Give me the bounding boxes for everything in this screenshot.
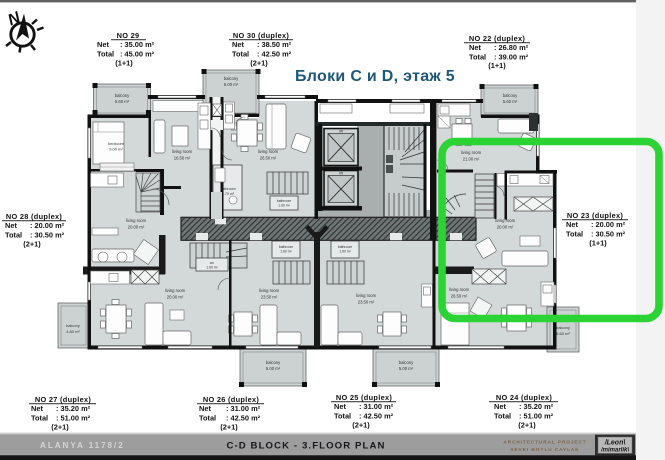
svg-text:Net: Net [199, 404, 211, 413]
svg-text:23.50 m²: 23.50 m² [261, 295, 278, 300]
svg-text:5.00 m²: 5.00 m² [399, 366, 414, 371]
svg-text:bathroom: bathroom [338, 245, 352, 249]
svg-text:bathroom: bathroom [279, 245, 293, 249]
svg-text:living room: living room [126, 218, 147, 223]
svg-text:: 31.00 m²: : 31.00 m² [359, 402, 394, 411]
svg-text:Total: Total [199, 414, 216, 423]
svg-text:(2+1): (2+1) [23, 240, 41, 249]
svg-text:: 51.00 m²: : 51.00 m² [519, 411, 554, 420]
svg-text:: 20.00 m²: : 20.00 m² [591, 220, 626, 229]
svg-text:(2+1): (2+1) [250, 59, 268, 68]
svg-text:NO 24 (duplex): NO 24 (duplex) [496, 393, 553, 402]
svg-text:: 35.00 m²: : 35.00 m² [120, 40, 155, 49]
svg-text:C-D BLOCK - 3.FLOOR PLAN: C-D BLOCK - 3.FLOOR PLAN [226, 441, 385, 452]
svg-text:5.00 m²: 5.00 m² [224, 82, 239, 87]
svg-text:: 20.00 m²: : 20.00 m² [30, 221, 65, 230]
svg-text:living room: living room [495, 218, 516, 223]
svg-text:balcony: balcony [115, 93, 130, 98]
svg-text:Total: Total [334, 411, 351, 420]
svg-text:: 42.50 m²: : 42.50 m² [226, 414, 261, 423]
svg-text:20.00 m²: 20.00 m² [167, 295, 184, 300]
svg-text:: 30.50 m²: : 30.50 m² [30, 231, 65, 240]
svg-text:NO 22 (duplex): NO 22 (duplex) [469, 34, 526, 43]
svg-text:NO 26 (duplex): NO 26 (duplex) [203, 395, 260, 404]
svg-text:1.60 m²: 1.60 m² [339, 250, 351, 254]
svg-text:lift: lift [339, 172, 342, 176]
svg-text:Total: Total [232, 50, 249, 59]
svg-text:: 35.20 m²: : 35.20 m² [56, 404, 91, 413]
svg-text:(1+1): (1+1) [115, 59, 133, 68]
svg-text:: 31.00 m²: : 31.00 m² [226, 404, 261, 413]
svg-text:balcony: balcony [556, 325, 570, 330]
svg-text:: 42.50 m²: : 42.50 m² [257, 50, 292, 59]
svg-text:1.60 m²: 1.60 m² [278, 204, 290, 208]
svg-text:: 30.50 m²: : 30.50 m² [591, 230, 626, 239]
svg-text:/Leon\: /Leon\ [604, 440, 626, 447]
svg-text:(2+1): (2+1) [352, 420, 370, 429]
svg-text:9.00 m²: 9.00 m² [109, 147, 123, 152]
svg-text:/mimarlik\: /mimarlik\ [600, 448, 629, 454]
svg-text:bathroom: bathroom [220, 187, 235, 191]
svg-text:living room: living room [259, 288, 280, 293]
svg-text:: 42.50 m²: : 42.50 m² [359, 411, 394, 420]
svg-text:16.50 m²: 16.50 m² [174, 156, 191, 161]
svg-text:balcony: balcony [66, 323, 80, 328]
svg-text:: 35.20 m²: : 35.20 m² [519, 402, 554, 411]
svg-text:lift: lift [339, 130, 342, 134]
svg-text:Total: Total [97, 50, 114, 59]
svg-text:: 51.00 m²: : 51.00 m² [56, 414, 91, 423]
svg-text:living room: living room [356, 293, 377, 298]
svg-text:living room: living room [172, 149, 193, 154]
svg-text:1.60 m²: 1.60 m² [206, 266, 218, 270]
svg-text:: 38.50 m²: : 38.50 m² [257, 40, 292, 49]
svg-text:Блоки C и D, этаж 5: Блоки C и D, этаж 5 [295, 68, 455, 85]
svg-text:Total: Total [469, 52, 486, 61]
svg-text:wc: wc [210, 261, 214, 265]
svg-text:Net: Net [31, 404, 43, 413]
svg-text:bedroom: bedroom [108, 141, 124, 146]
svg-text:Total: Total [5, 231, 22, 240]
svg-text:20.00 m²: 20.00 m² [497, 225, 514, 230]
svg-text:4.80 m²: 4.80 m² [66, 329, 80, 334]
svg-text:5.60 m²: 5.60 m² [503, 99, 518, 104]
svg-text:NO 27 (duplex): NO 27 (duplex) [35, 395, 92, 404]
svg-text:Net: Net [469, 43, 481, 52]
svg-text:1.60 m²: 1.60 m² [280, 250, 292, 254]
svg-text:Net: Net [334, 402, 346, 411]
svg-text:living room: living room [258, 149, 279, 154]
svg-text:Net: Net [97, 40, 109, 49]
svg-text:living room: living room [165, 288, 186, 293]
svg-text:bathroom: bathroom [277, 199, 291, 203]
svg-text:21.00 m²: 21.00 m² [463, 157, 480, 162]
svg-text:(2+1): (2+1) [220, 423, 238, 432]
svg-text:NO 30 (duplex): NO 30 (duplex) [233, 31, 290, 40]
svg-text:ALANYA 1178/2: ALANYA 1178/2 [40, 441, 125, 450]
svg-text:(2+1): (2+1) [51, 423, 69, 432]
svg-text:NO 23 (duplex): NO 23 (duplex) [567, 211, 624, 220]
svg-text:5.60 m²: 5.60 m² [115, 99, 130, 104]
svg-text:: 45.00 m²: : 45.00 m² [120, 50, 155, 59]
svg-text:balcony: balcony [266, 360, 281, 365]
svg-text:Total: Total [31, 414, 48, 423]
svg-text:(2+1): (2+1) [518, 420, 536, 429]
svg-text:balcony: balcony [224, 76, 239, 81]
svg-text:NO 28 (duplex): NO 28 (duplex) [6, 212, 63, 221]
svg-text:Net: Net [232, 40, 244, 49]
svg-text:balcony: balcony [399, 360, 414, 365]
svg-text:SEVKI BOYLU CAYLAK: SEVKI BOYLU CAYLAK [510, 447, 579, 452]
svg-text:26.50 m²: 26.50 m² [451, 294, 468, 299]
svg-text:Net: Net [566, 220, 578, 229]
svg-text:Net: Net [494, 402, 506, 411]
svg-text:(1+1): (1+1) [488, 61, 506, 70]
svg-text:Total: Total [566, 230, 583, 239]
svg-text:3.70 m²: 3.70 m² [222, 192, 235, 196]
svg-text:ARCHITECTURAL PROJECT: ARCHITECTURAL PROJECT [503, 440, 586, 445]
svg-text:balcony: balcony [503, 93, 518, 98]
svg-text:5.60 m²: 5.60 m² [556, 331, 570, 336]
svg-text:NO 29: NO 29 [117, 31, 140, 40]
svg-text:living room: living room [449, 287, 470, 292]
svg-text:NO 25 (duplex): NO 25 (duplex) [336, 393, 393, 402]
svg-text:23.50 m²: 23.50 m² [358, 300, 375, 305]
svg-text:20.00 m²: 20.00 m² [128, 225, 145, 230]
svg-text:living room: living room [461, 150, 482, 155]
svg-text:26.50 m²: 26.50 m² [260, 156, 277, 161]
svg-text:(1+1): (1+1) [589, 239, 607, 248]
svg-text:Total: Total [494, 411, 511, 420]
svg-text:: 26.80 m²: : 26.80 m² [494, 43, 529, 52]
svg-text:Net: Net [5, 221, 17, 230]
svg-text:5.00 m²: 5.00 m² [266, 366, 281, 371]
